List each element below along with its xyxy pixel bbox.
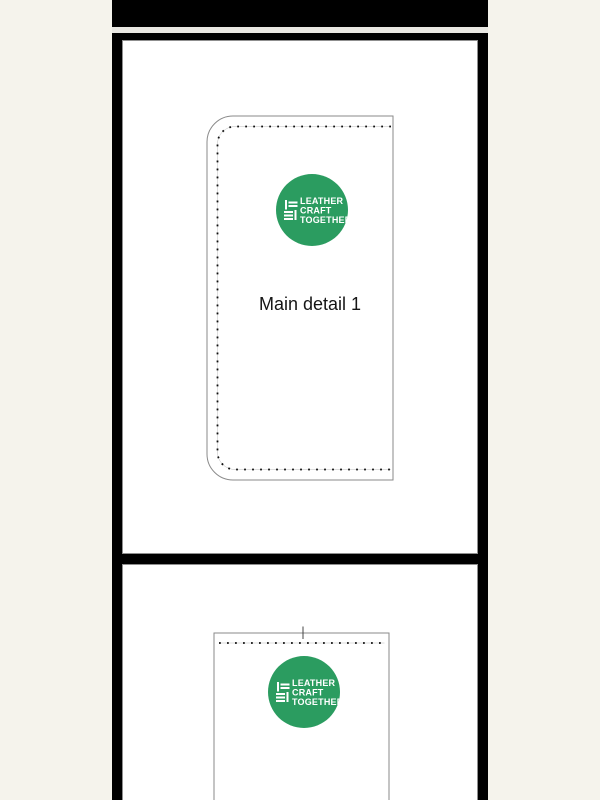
logo-line-1: LEATHER bbox=[300, 196, 344, 206]
brand-logo-badge: LEATHER CRAFT TOGETHER bbox=[268, 656, 344, 728]
previous-page-bottom-frame bbox=[112, 0, 488, 27]
page-1-content: LEATHER CRAFT TOGETHER Main detail 1 bbox=[122, 40, 478, 554]
pattern-drawing-main-detail: LEATHER CRAFT TOGETHER Main detail 1 bbox=[123, 41, 477, 553]
logo-line-3: TOGETHER bbox=[292, 697, 344, 707]
pattern-page-2: LEATHER CRAFT TOGETHER bbox=[112, 559, 488, 800]
page-2-content: LEATHER CRAFT TOGETHER bbox=[122, 564, 478, 800]
brand-logo-badge: LEATHER CRAFT TOGETHER bbox=[276, 174, 352, 246]
logo-line-2: CRAFT bbox=[300, 206, 332, 216]
piece-label: Main detail 1 bbox=[259, 294, 361, 314]
logo-line-3: TOGETHER bbox=[300, 215, 352, 225]
document-viewer[interactable]: LEATHER CRAFT TOGETHER Main detail 1 bbox=[112, 0, 488, 800]
pattern-drawing-second-piece: LEATHER CRAFT TOGETHER bbox=[123, 565, 477, 800]
logo-line-2: CRAFT bbox=[292, 688, 324, 698]
logo-line-1: LEATHER bbox=[292, 678, 336, 688]
pattern-page-1: LEATHER CRAFT TOGETHER Main detail 1 bbox=[112, 33, 488, 559]
